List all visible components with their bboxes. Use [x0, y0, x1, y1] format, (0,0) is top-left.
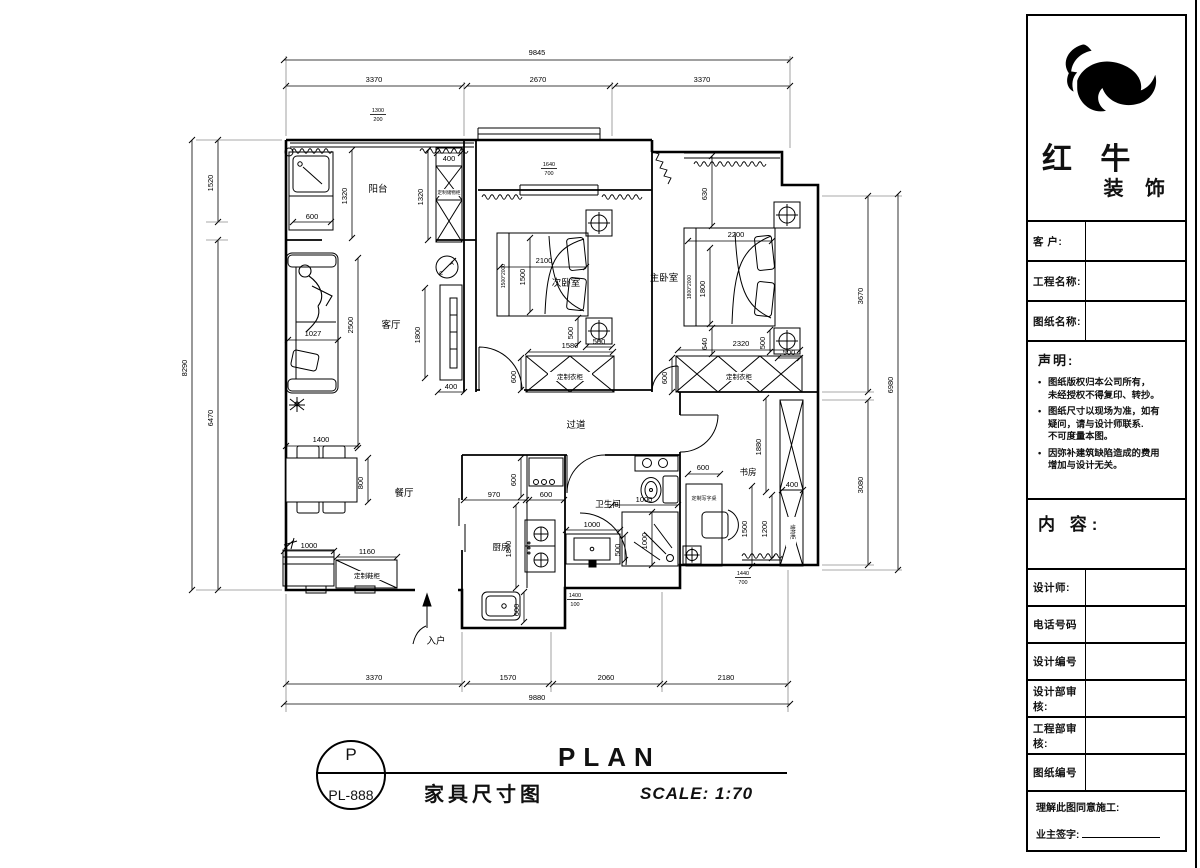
dim-label: 2180 — [718, 673, 735, 682]
svg-text:1640: 1640 — [543, 162, 555, 168]
bathroom-vanity — [566, 534, 620, 567]
dim-label: 1160 — [359, 547, 375, 556]
dim-label: 1400 — [313, 435, 330, 444]
bathroom-basin-top — [635, 456, 678, 471]
field-label: 工程部审核: — [1028, 718, 1086, 753]
info-row-design-no: 设计编号 — [1028, 644, 1185, 681]
dimension: 1800 — [698, 245, 713, 327]
field-label: 设计师: — [1028, 570, 1086, 605]
field-label: 设计部审核: — [1028, 681, 1086, 716]
field-value[interactable] — [1086, 718, 1185, 753]
statement-item: • 图纸版权归本公司所有， 未经授权不得复印、转抄。 — [1038, 376, 1179, 401]
dimension: 600 — [290, 212, 334, 225]
statement-item: • 因弥补建筑缺陷造成的费用 增加与设计无关。 — [1038, 447, 1179, 472]
shoe-cabinet-label: 定制鞋柜 — [354, 571, 381, 580]
field-row-client: 客 户: — [1028, 222, 1185, 262]
plan-label: PLAN — [558, 742, 661, 773]
dimension: 400 — [435, 382, 467, 395]
dimension: 600 — [526, 490, 567, 503]
fraction: 1640 700 — [541, 162, 557, 177]
room-label-hallway: 过道 — [566, 419, 586, 431]
statement-section: 声明: • 图纸版权归本公司所有， 未经授权不得复印、转抄。 • 图纸尺寸以现场… — [1028, 342, 1185, 500]
bedroom2-bed — [497, 233, 588, 316]
dimension: 1400 — [283, 435, 360, 449]
dim-label: 2670 — [530, 75, 547, 84]
dim-label: 6470 — [206, 410, 215, 427]
signature-line[interactable] — [1082, 827, 1160, 838]
dim-label: 600 — [509, 474, 518, 487]
master-wardrobe-label: 定制衣柜 — [726, 372, 753, 381]
fraction: 1440 700 — [735, 571, 751, 586]
dim-label: 3370 — [694, 75, 711, 84]
study-cabinet-label: 储物柜 — [789, 524, 796, 539]
ac-letter-c: C — [439, 271, 443, 277]
dim-label: 1500 — [518, 269, 527, 286]
dim-label: 600 — [697, 463, 710, 472]
drawing-number-bubble: P PL-888 — [316, 740, 386, 810]
dim-label: 1320 — [416, 189, 425, 206]
dining-set — [286, 446, 357, 513]
dimension: 1320 — [416, 147, 431, 243]
dim-label: 600 — [509, 371, 518, 384]
sofa — [286, 253, 338, 393]
ceiling-lamp-icon — [774, 202, 800, 228]
dimension: 2500 — [346, 255, 361, 451]
field-label: 工程名称: — [1028, 262, 1086, 300]
desk-label: 定制写字桌 — [691, 495, 716, 502]
dimension: 640 — [700, 325, 715, 357]
dim-label: 9880 — [529, 693, 546, 702]
bullet-icon: • — [1038, 447, 1048, 472]
dim-label: 3670 — [856, 288, 865, 305]
dim-label: 2500 — [346, 317, 355, 334]
dimension: 3370 — [283, 75, 465, 89]
dim-label: 600 — [660, 372, 669, 385]
dim-label: 400 — [443, 154, 456, 163]
dim-label: 500 — [758, 337, 767, 350]
kitchen-sliding-door — [459, 498, 465, 552]
dimension: 8290 — [180, 137, 195, 593]
dim-label: 1520 — [206, 175, 215, 192]
dim-label: 400 — [786, 480, 799, 489]
dim-label: 2320 — [733, 339, 750, 348]
field-value[interactable] — [1086, 262, 1185, 300]
dimension: 3370 — [612, 75, 793, 89]
field-label: 图纸名称: — [1028, 302, 1086, 340]
drawing-letter: P — [318, 745, 384, 765]
dimension: 1840 — [504, 502, 519, 591]
dim-label: 640 — [700, 338, 709, 351]
dimension: 2180 — [661, 673, 791, 687]
dimension: 6470 — [206, 237, 221, 593]
fraction-dims: 1300 200 1640 700 1400 100 1440 700 — [370, 108, 751, 608]
dim-label: 500 — [566, 327, 575, 340]
dimension: 1880 — [754, 395, 769, 495]
dim-label: 1580 — [562, 341, 579, 350]
dim-label: 2060 — [598, 673, 615, 682]
dim-label: 1000 — [636, 495, 653, 504]
dim-label: 2200 — [728, 230, 745, 239]
dimension: 3080 — [856, 397, 871, 568]
plant — [289, 397, 305, 412]
room-label-bedroom2: 次卧室 — [552, 277, 581, 289]
dimension: 9845 — [281, 48, 793, 63]
dimension: 1000 — [563, 520, 623, 533]
window-zigzag — [694, 162, 766, 167]
stove — [525, 520, 555, 572]
field-label: 设计编号 — [1028, 644, 1086, 679]
dim-label: 1320 — [340, 188, 349, 205]
field-value[interactable] — [1086, 681, 1185, 716]
kitchen-counter — [527, 455, 563, 588]
dim-label: 500 — [783, 348, 796, 357]
field-value[interactable] — [1086, 644, 1185, 679]
ceiling-lamp-icon — [586, 210, 612, 236]
room-label-dining: 餐厅 — [394, 487, 414, 499]
svg-text:1440: 1440 — [737, 571, 749, 577]
room-label-bathroom: 卫生间 — [595, 499, 621, 509]
dim-label: 630 — [700, 188, 709, 201]
dimension: 1200 — [760, 492, 775, 561]
svg-text:700: 700 — [738, 580, 747, 586]
dim-label: 400 — [445, 382, 458, 391]
dim-label: 500 — [593, 337, 606, 346]
room-label-study: 书房 — [739, 467, 756, 477]
dim-label: 1000 — [640, 533, 649, 550]
dim-label: 1570 — [500, 673, 517, 682]
window-zigzag — [482, 195, 522, 200]
sheet-border — [1195, 0, 1197, 868]
field-value[interactable] — [1086, 570, 1185, 605]
bullet-icon: • — [1038, 376, 1048, 401]
title-block: 红 牛 装 饰 客 户: 工程名称: 图纸名称: 声明: • 图纸版权归本公司所… — [1026, 14, 1187, 852]
dim-label: 1000 — [584, 520, 601, 529]
drawing-title: 家具尺寸图 — [424, 778, 544, 807]
scale-label: SCALE: 1:70 — [640, 784, 753, 804]
dimension: 3370 — [283, 673, 465, 687]
dim-label: 1000 — [301, 541, 318, 550]
statement-title: 声明: — [1038, 350, 1179, 369]
dimension: 2670 — [464, 75, 613, 89]
drawing-sheet: 阳台 客厅 次卧室 主卧室 过道 餐厅 厨房 卫生间 书房 入户 定制衣柜 定制… — [0, 0, 1200, 868]
dimension: 3670 — [856, 193, 871, 395]
dimension: 1160 — [334, 547, 400, 560]
title-bar-line — [316, 772, 787, 774]
drawing-number: PL-888 — [318, 787, 384, 803]
window-zigzag — [742, 554, 782, 559]
field-value[interactable] — [1086, 302, 1185, 340]
dim-label: 800 — [356, 477, 365, 490]
dimension: 970 — [461, 490, 529, 503]
field-label: 客 户: — [1028, 222, 1086, 260]
logo-cell: 红 牛 装 饰 — [1028, 16, 1185, 222]
content-section: 内 容: — [1028, 500, 1185, 570]
bathroom-door — [567, 455, 605, 493]
tv-cabinet — [440, 285, 462, 380]
dim-label: 1840 — [504, 541, 513, 558]
field-row-project: 工程名称: — [1028, 262, 1185, 302]
dim-label: 1800 — [698, 281, 707, 298]
room-label-balcony: 阳台 — [368, 183, 387, 195]
dim-label: 1880 — [754, 439, 763, 456]
dim-label: 9845 — [529, 48, 546, 57]
dim-label: 1500 — [740, 521, 749, 538]
dimension: 1520 — [206, 137, 221, 225]
dim-label: 1200 — [760, 521, 769, 538]
dim-label: 3370 — [366, 673, 383, 682]
dimension: 1570 — [464, 673, 552, 687]
info-row-sheet-no: 图纸编号 — [1028, 755, 1185, 792]
fraction: 1400 100 — [567, 593, 583, 608]
dim-label: 1800 — [413, 327, 422, 344]
svg-text:200: 200 — [373, 117, 382, 123]
signature-section: 理解此图同意施工: 业主签字: — [1028, 792, 1185, 850]
field-value[interactable] — [1086, 607, 1185, 642]
signature-label: 业主签字: — [1036, 830, 1079, 841]
furniture — [283, 148, 803, 644]
fraction: 1300 200 — [370, 108, 386, 123]
svg-text:100: 100 — [570, 602, 579, 608]
bedroom2-wardrobe-label: 定制衣柜 — [557, 372, 584, 381]
master-bed-size: 1800*2000 — [687, 275, 693, 299]
dim-label: 6980 — [886, 377, 895, 394]
agreement-label: 理解此图同意施工: — [1036, 799, 1185, 814]
dimension: 600 — [660, 355, 675, 395]
dimension: 2100 — [497, 256, 589, 270]
dim-label: 500 — [613, 544, 622, 557]
field-row-sheetname: 图纸名称: — [1028, 302, 1185, 342]
info-row-design-audit: 设计部审核: — [1028, 681, 1185, 718]
dimension: 600 — [685, 463, 723, 477]
field-label: 图纸编号 — [1028, 755, 1086, 790]
master-bed — [684, 228, 775, 326]
room-label-master: 主卧室 — [650, 272, 679, 284]
dimension: 800 — [356, 455, 371, 505]
field-label: 电话号码 — [1028, 607, 1086, 642]
room-label-living: 客厅 — [381, 319, 401, 331]
dim-label: 3080 — [856, 477, 865, 494]
desk-chair — [702, 510, 738, 540]
dim-label: 1027 — [305, 329, 322, 338]
info-row-phone: 电话号码 — [1028, 607, 1185, 644]
dimension: 600 — [509, 455, 524, 500]
dimension: 500 — [758, 327, 773, 355]
bull-logo-icon — [1046, 34, 1166, 130]
window-zigzag — [602, 195, 642, 200]
dimension: 1027 — [285, 329, 341, 343]
svg-text:1300: 1300 — [372, 108, 384, 114]
dim-label: 600 — [306, 212, 319, 221]
svg-text:1400: 1400 — [569, 593, 581, 599]
dimension: 2200 — [685, 230, 775, 244]
dimension: 1500 — [518, 235, 533, 315]
statement-item: • 图纸尺寸以现场为准，如有 疑问，请与设计师联系. 不可度量本图。 — [1038, 405, 1179, 443]
dimension: 1000 — [640, 509, 655, 568]
ac-letter-a: A — [450, 261, 454, 267]
dim-label: 3370 — [366, 75, 383, 84]
dimension: 6980 — [886, 191, 901, 573]
study-door — [680, 415, 718, 452]
field-value[interactable] — [1086, 222, 1185, 260]
dim-label: 2100 — [536, 256, 553, 265]
dim-label: 600 — [512, 604, 521, 617]
company-name-2: 装 饰 — [1103, 172, 1173, 201]
corner-insulation-zigzag — [652, 152, 671, 184]
info-row-eng-audit: 工程部审核: — [1028, 718, 1185, 755]
dimension: 9880 — [281, 693, 793, 707]
entry-label: 入户 — [426, 635, 445, 647]
floor-plan: 阳台 客厅 次卧室 主卧室 过道 餐厅 厨房 卫生间 书房 入户 定制衣柜 定制… — [0, 0, 1020, 868]
window-zigzag — [292, 149, 332, 154]
dimension: 1320 — [340, 147, 355, 241]
dimension: 2060 — [550, 673, 663, 687]
svg-text:700: 700 — [544, 171, 553, 177]
dim-label: 970 — [488, 490, 501, 499]
lamp-symbols — [586, 202, 800, 564]
dim-label: 8290 — [180, 360, 189, 377]
content-label: 内 容: — [1038, 515, 1102, 534]
balcony-cabinet-label: 定制储物柜 — [438, 189, 461, 196]
field-value[interactable] — [1086, 755, 1185, 790]
bullet-icon: • — [1038, 405, 1048, 443]
dimension: 1800 — [413, 285, 428, 381]
info-row-designer: 设计师: — [1028, 570, 1185, 607]
dim-label: 600 — [540, 490, 553, 499]
